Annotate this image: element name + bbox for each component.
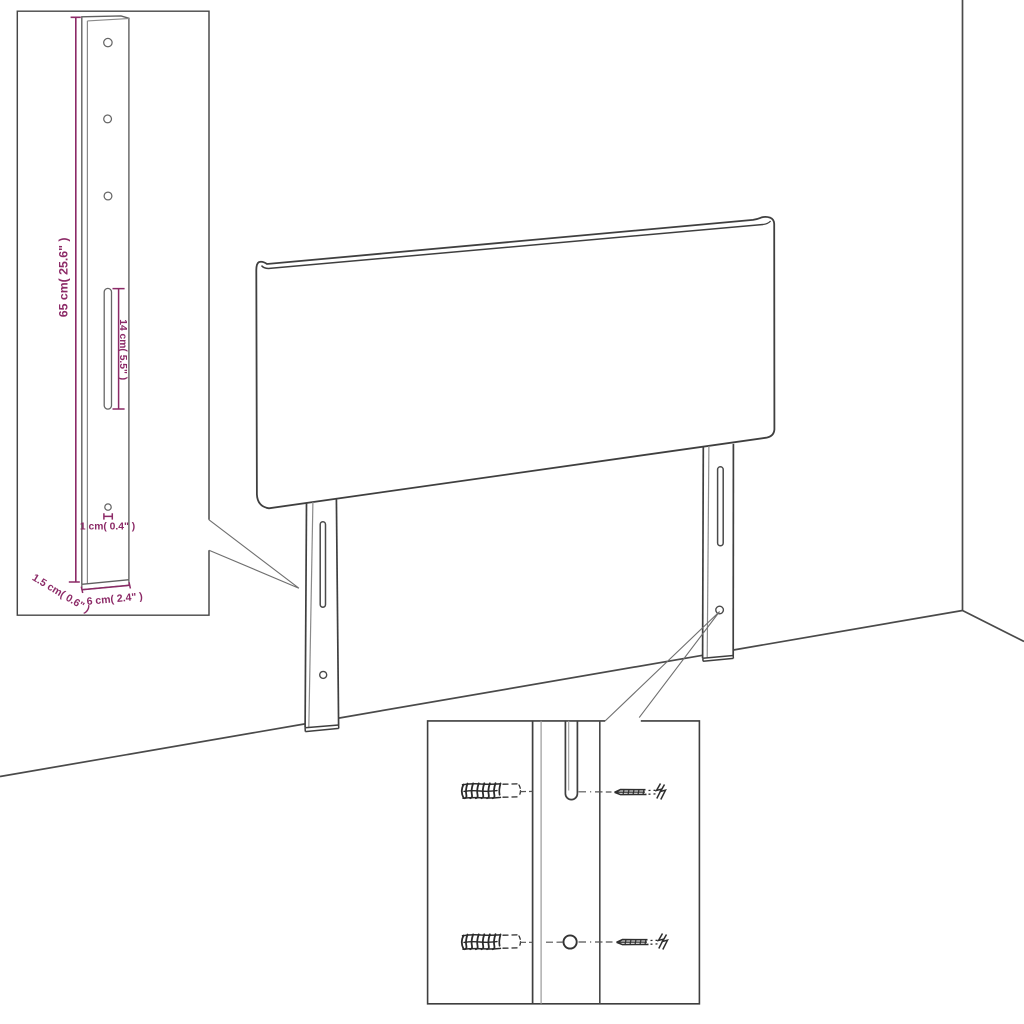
svg-text:14 cm( 5.5" ): 14 cm( 5.5" )	[117, 319, 128, 380]
svg-text:65 cm( 25.6" ): 65 cm( 25.6" )	[56, 238, 70, 318]
svg-text:1 cm( 0.4" ): 1 cm( 0.4" )	[80, 522, 135, 533]
